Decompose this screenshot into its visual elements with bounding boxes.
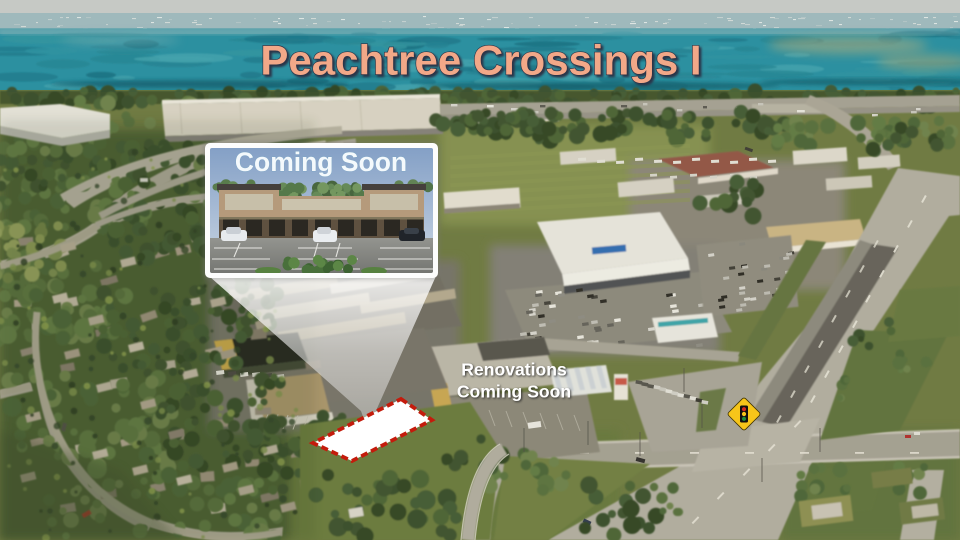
svg-text:Renovations: Renovations — [461, 360, 567, 380]
svg-text:Coming Soon: Coming Soon — [457, 382, 571, 402]
svg-text:Peachtree Crossings I: Peachtree Crossings I — [260, 37, 701, 84]
svg-text:Coming Soon: Coming Soon — [235, 147, 407, 177]
